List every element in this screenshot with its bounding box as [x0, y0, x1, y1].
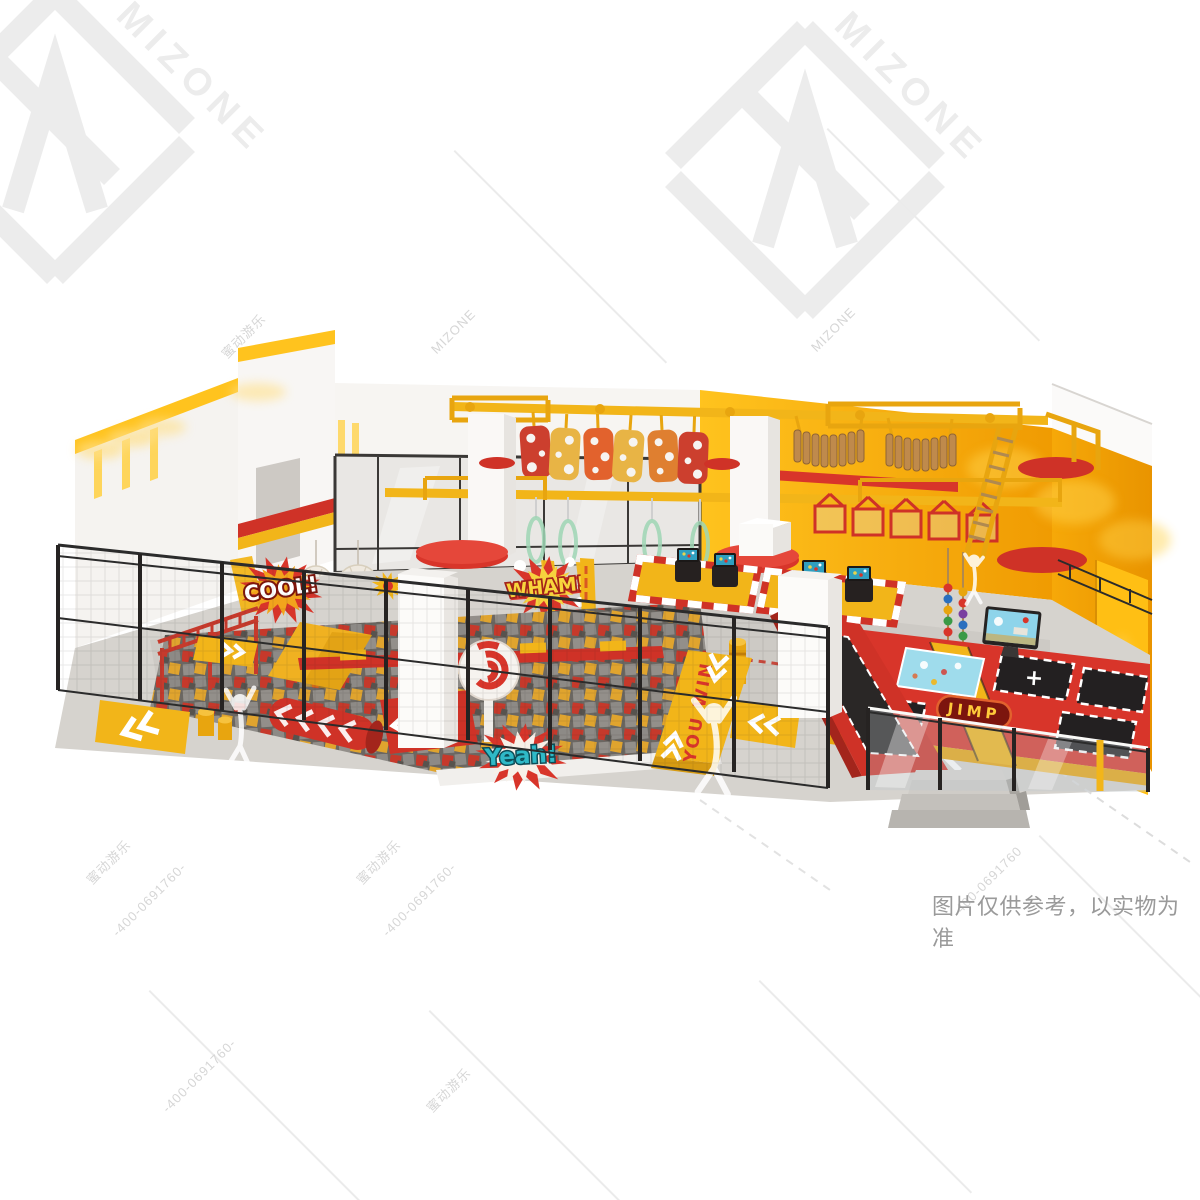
- wall-platform-disc: [1018, 457, 1094, 479]
- playground-render: COOL! WHAM!: [0, 0, 1200, 1200]
- render-canvas: MIZONE MIZONE 蜜动游乐 MIZONE MIZONE 蜜动游乐 蜜动…: [0, 0, 1200, 1200]
- wall-platform-disc: [997, 547, 1087, 573]
- svg-text:+: +: [1024, 665, 1044, 691]
- disclaimer-text: 图片仅供参考，以实物为准: [932, 889, 1200, 953]
